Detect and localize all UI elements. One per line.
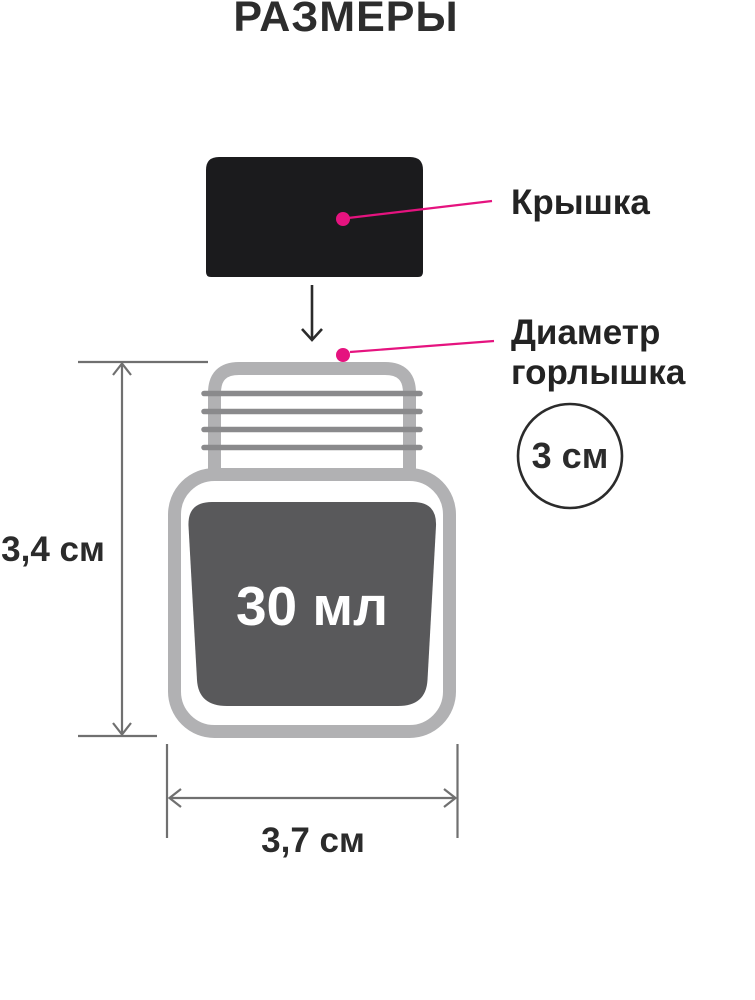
bottle-volume-label: 30 мл (162, 579, 462, 634)
width-dimension-label: 3,7 см (240, 820, 386, 862)
page-title: РАЗМЕРЫ (0, 0, 692, 42)
neck-diameter-value: 3 см (518, 430, 622, 482)
neck-diameter-annotation-label: Диаметр горлышка (511, 313, 716, 393)
product-dimensions-diagram: РАЗМЕРЫ Крышка Диаметр горлышка 3 см 30 … (0, 0, 755, 1000)
neck-callout-dot (336, 348, 350, 362)
bottle-cap-shape (206, 157, 423, 277)
down-arrow-icon (302, 285, 322, 340)
cap-callout-dot (336, 212, 350, 226)
cap-annotation-label: Крышка (511, 181, 650, 225)
bottle-neck-shape (215, 369, 410, 477)
neck-callout-line (350, 341, 494, 352)
height-dimension-label: 3,4 см (0, 529, 106, 571)
